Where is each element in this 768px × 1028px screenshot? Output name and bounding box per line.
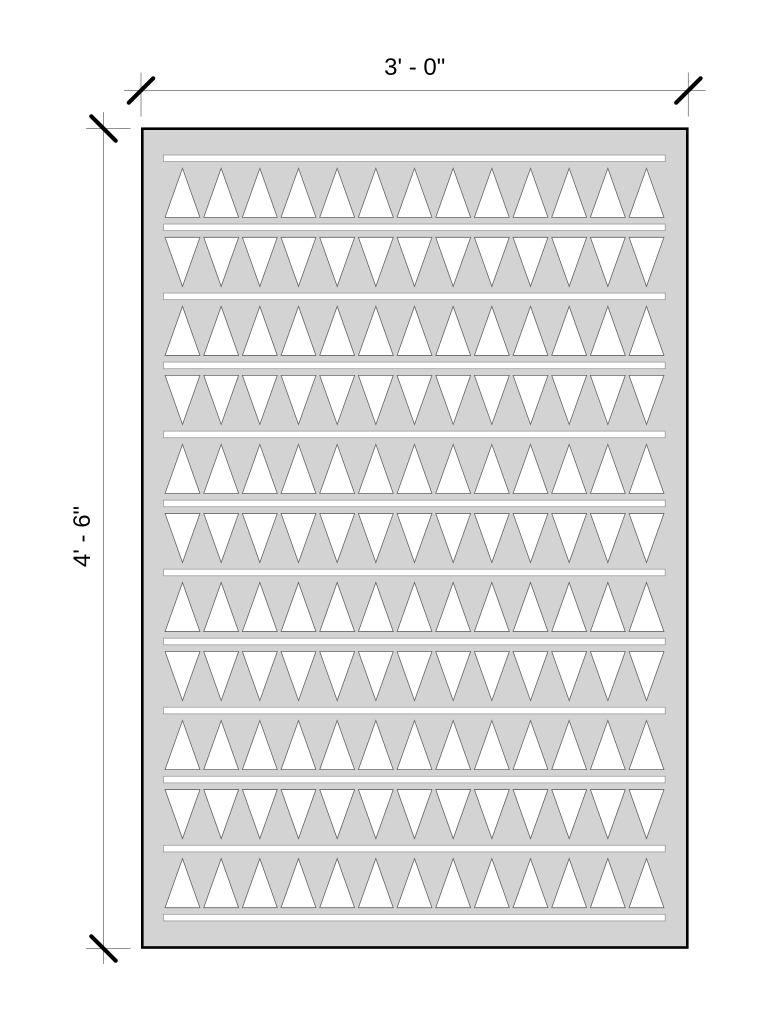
svg-text:3' - 0": 3' - 0" [384, 54, 445, 81]
svg-text:4' - 6": 4' - 6" [69, 506, 96, 567]
